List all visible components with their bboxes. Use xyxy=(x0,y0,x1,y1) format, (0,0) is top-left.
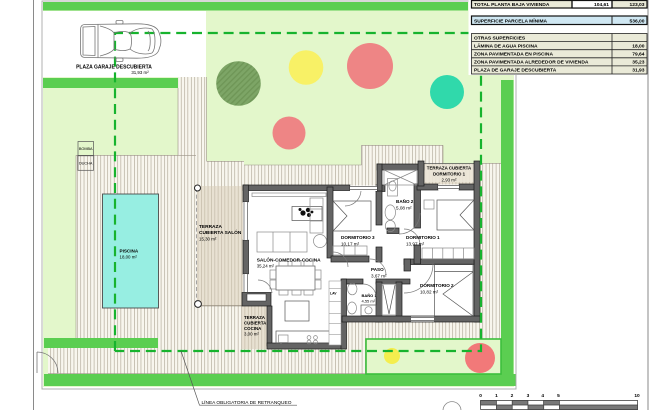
svg-text:35,24 m²: 35,24 m² xyxy=(257,263,275,268)
svg-text:BAÑO 2: BAÑO 2 xyxy=(396,198,414,204)
svg-text:ZONA PAVIMENTADA ALREDEDOR DE: ZONA PAVIMENTADA ALREDEDOR DE VIVIENDA xyxy=(474,60,589,66)
svg-text:DORMITORIO 1: DORMITORIO 1 xyxy=(406,235,440,240)
svg-text:13,97 m²: 13,97 m² xyxy=(406,242,425,247)
svg-text:3,00 m²: 3,00 m² xyxy=(244,332,259,337)
svg-text:TERRAZA: TERRAZA xyxy=(244,315,266,320)
svg-text:10,17 m²: 10,17 m² xyxy=(341,242,360,247)
svg-text:COCINA: COCINA xyxy=(244,326,262,331)
svg-text:3,67 m²: 3,67 m² xyxy=(371,274,387,279)
svg-text:DORMITORIO 1: DORMITORIO 1 xyxy=(433,172,466,177)
svg-text:15,30 m²: 15,30 m² xyxy=(199,236,217,241)
svg-text:PLAZA DE GARAJE DESCUBIERTA: PLAZA DE GARAJE DESCUBIERTA xyxy=(474,68,557,74)
svg-text:10: 10 xyxy=(634,393,640,399)
svg-text:ZONA PAVIMENTADA EN PISCINA: ZONA PAVIMENTADA EN PISCINA xyxy=(474,52,553,58)
svg-text:31,93 m²: 31,93 m² xyxy=(131,70,149,75)
svg-text:OTRAS SUPERFICIES: OTRAS SUPERFICIES xyxy=(474,35,526,41)
svg-text:1: 1 xyxy=(495,393,498,399)
svg-text:5: 5 xyxy=(557,393,560,399)
svg-text:DUCHA: DUCHA xyxy=(79,162,93,166)
svg-text:2,93 m²: 2,93 m² xyxy=(442,178,457,183)
svg-text:PASO: PASO xyxy=(371,267,384,272)
svg-text:DORMITORIO 2: DORMITORIO 2 xyxy=(420,283,454,288)
svg-text:CUBIERTA: CUBIERTA xyxy=(244,321,267,326)
svg-text:LÁMINA DE AGUA PISCINA: LÁMINA DE AGUA PISCINA xyxy=(474,42,538,49)
svg-text:PISCINA: PISCINA xyxy=(120,248,139,253)
svg-text:31,93: 31,93 xyxy=(632,68,645,74)
svg-text:18,00 m²: 18,00 m² xyxy=(120,254,138,259)
svg-text:BAÑO 1: BAÑO 1 xyxy=(362,293,378,298)
svg-text:104,61: 104,61 xyxy=(594,2,609,8)
svg-text:18,00: 18,00 xyxy=(632,43,645,49)
svg-text:2: 2 xyxy=(511,393,514,399)
svg-text:TERRAZA CUBIERTA: TERRAZA CUBIERTA xyxy=(427,166,472,171)
svg-text:DORMITORIO 3: DORMITORIO 3 xyxy=(341,235,375,240)
svg-text:LÍNEA OBLIGATORIA DE RETRANQUE: LÍNEA OBLIGATORIA DE RETRANQUEO xyxy=(202,399,292,406)
svg-text:5,08 m²: 5,08 m² xyxy=(396,206,412,211)
svg-text:BOMBA: BOMBA xyxy=(79,147,93,151)
svg-text:536,00: 536,00 xyxy=(630,18,645,24)
svg-text:4: 4 xyxy=(541,393,544,399)
svg-text:10,82 m²: 10,82 m² xyxy=(420,290,439,295)
svg-text:LAV: LAV xyxy=(330,292,337,296)
svg-text:0: 0 xyxy=(479,393,482,399)
svg-text:123,03: 123,03 xyxy=(630,2,645,8)
svg-text:35,23: 35,23 xyxy=(632,60,645,66)
svg-text:3: 3 xyxy=(527,393,530,399)
svg-text:4,55 m²: 4,55 m² xyxy=(362,298,376,303)
svg-text:79,64: 79,64 xyxy=(632,52,645,58)
svg-text:TERRAZA: TERRAZA xyxy=(199,224,222,230)
svg-text:TOTAL PLANTA BAJA VIVIENDA: TOTAL PLANTA BAJA VIVIENDA xyxy=(474,2,550,8)
